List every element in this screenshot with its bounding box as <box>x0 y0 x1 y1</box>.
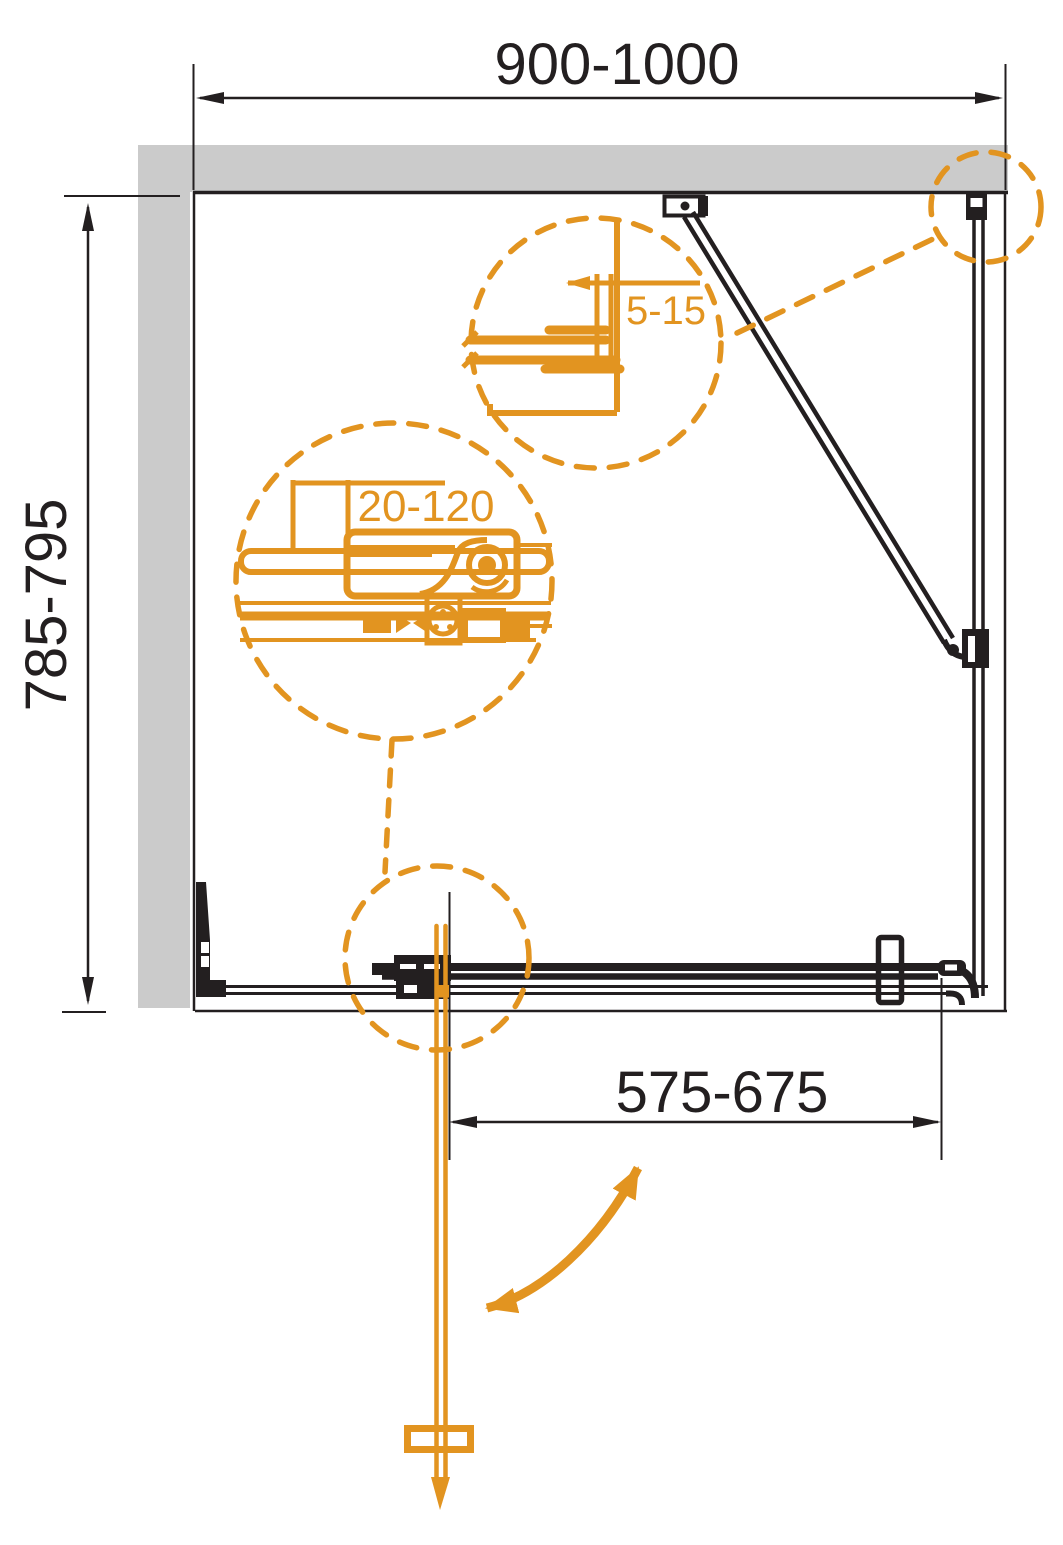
wall <box>138 145 1008 1008</box>
detail-wall-adjustment: 5-15 <box>463 222 706 413</box>
corner-elbow <box>946 994 962 1006</box>
dimension-label-depth: 785-795 <box>14 499 79 712</box>
wall-top-band <box>138 145 1008 192</box>
bottom-rail-assembly <box>206 938 988 1006</box>
pivot-bracket-end <box>698 196 708 216</box>
arrowhead-down-icon <box>82 977 94 1005</box>
dimension-label-opening: 575-675 <box>616 1060 829 1125</box>
wheel-dot <box>447 624 453 630</box>
callout-leader-line <box>385 740 392 872</box>
door-panel-connector <box>962 629 989 668</box>
wall-left-band <box>138 145 190 1008</box>
door-open-position <box>665 196 990 668</box>
technical-drawing-page: 900-1000 785-795 575-675 <box>0 0 1063 1545</box>
arrowhead-left-icon <box>196 92 224 104</box>
carriage-slot <box>400 964 416 969</box>
drawing-canvas: 900-1000 785-795 575-675 <box>0 0 1063 1545</box>
door-swing-position <box>408 926 471 1510</box>
arrowhead-right-icon <box>913 1116 941 1128</box>
detail-label-slider: 20-120 <box>357 482 494 531</box>
door-glass-edge <box>693 212 953 638</box>
wheel-dot <box>440 609 446 615</box>
detail-slider-mechanism: 20-120 <box>240 480 552 643</box>
roller-bracket <box>372 963 396 975</box>
door-glass-edge <box>684 217 944 643</box>
dimension-label-width: 900-1000 <box>494 32 739 97</box>
door-end-cap <box>947 644 959 656</box>
wheel-dot <box>433 624 439 630</box>
door-swing-arrow-icon <box>487 1168 638 1308</box>
pivot-slot <box>404 985 417 993</box>
detail-profile-foot <box>490 404 617 413</box>
connector-slot <box>945 965 957 971</box>
pivot-point-icon <box>681 202 690 211</box>
dimension-bottom: 575-675 <box>449 892 942 1160</box>
profile-notch <box>201 942 209 953</box>
clamp-block <box>363 615 391 633</box>
swing-door-tip <box>431 1477 450 1510</box>
fixed-panel-right <box>966 193 987 996</box>
end-block <box>503 614 530 638</box>
detail-label-wall-adjustment: 5-15 <box>626 289 706 333</box>
wall-profile-shape <box>196 882 226 997</box>
callout-leader-line <box>737 238 935 333</box>
arrowhead-up-icon <box>82 203 94 231</box>
profile-notch <box>201 956 209 967</box>
detail-arrowhead-icon <box>566 276 590 290</box>
swing-door-handle <box>408 1429 471 1450</box>
arrowhead-left-icon <box>449 1116 477 1128</box>
bracket-slot <box>971 198 983 207</box>
arrowhead-right-icon <box>975 92 1003 104</box>
swing-door-pivot <box>437 985 450 998</box>
wall-profile-left <box>196 882 226 997</box>
connector-slot <box>968 636 975 662</box>
